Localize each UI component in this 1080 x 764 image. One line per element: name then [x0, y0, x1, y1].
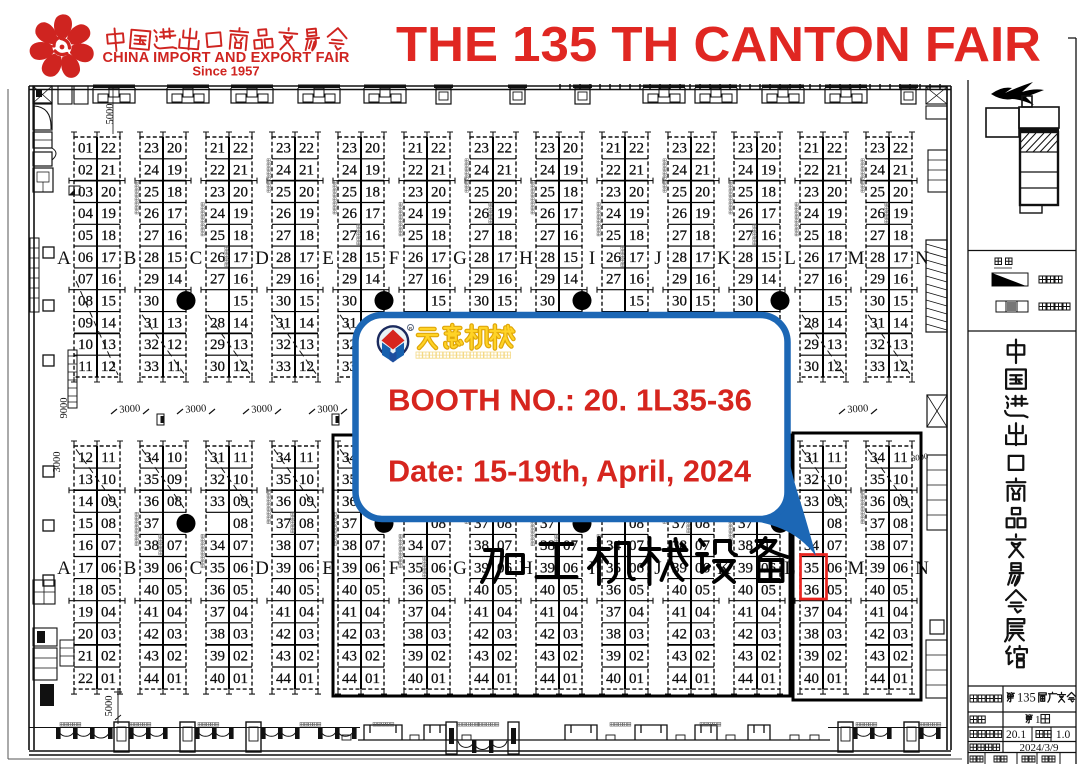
svg-text:43: 43 [276, 649, 291, 665]
svg-text:32: 32 [210, 472, 225, 488]
svg-text:39: 39 [210, 649, 225, 665]
svg-text:3000: 3000 [185, 403, 207, 415]
svg-text:17: 17 [299, 250, 315, 266]
svg-text:32: 32 [276, 337, 291, 353]
svg-text:15: 15 [695, 294, 710, 310]
svg-text:21: 21 [408, 141, 423, 157]
svg-text:27: 27 [540, 228, 556, 244]
svg-text:28: 28 [870, 250, 885, 266]
svg-text:43: 43 [342, 649, 357, 665]
svg-text:27: 27 [474, 228, 490, 244]
svg-text:18: 18 [497, 228, 512, 244]
svg-text:39: 39 [408, 649, 423, 665]
svg-text:35: 35 [408, 560, 423, 576]
svg-text:40: 40 [738, 582, 753, 598]
svg-text:G: G [453, 248, 467, 269]
svg-text:30: 30 [672, 294, 687, 310]
svg-text:38: 38 [540, 538, 555, 554]
svg-text:42: 42 [870, 627, 885, 643]
svg-text:27: 27 [804, 272, 820, 288]
svg-text:18: 18 [827, 228, 842, 244]
svg-text:L: L [784, 248, 796, 269]
svg-text:02: 02 [761, 649, 776, 665]
svg-text:G: G [453, 558, 467, 579]
svg-text:35: 35 [276, 472, 291, 488]
svg-text:01: 01 [695, 671, 710, 687]
svg-text:19: 19 [893, 206, 908, 222]
svg-text:43: 43 [738, 649, 753, 665]
svg-text:25: 25 [672, 184, 687, 200]
svg-text:05: 05 [497, 582, 512, 598]
svg-text:15: 15 [893, 294, 908, 310]
svg-text:30: 30 [342, 294, 357, 310]
svg-text:24: 24 [804, 206, 820, 222]
svg-text:21: 21 [431, 163, 446, 179]
svg-text:BOOTH NO.: 20. 1L35-36: BOOTH NO.: 20. 1L35-36 [388, 383, 752, 418]
svg-text:16: 16 [629, 272, 645, 288]
svg-text:37: 37 [210, 605, 226, 621]
svg-text:19: 19 [761, 163, 776, 179]
svg-text:38: 38 [144, 538, 159, 554]
svg-text:14: 14 [563, 272, 579, 288]
svg-text:27: 27 [738, 228, 754, 244]
svg-text:37: 37 [408, 605, 424, 621]
svg-text:A: A [57, 248, 71, 269]
svg-text:17: 17 [761, 206, 777, 222]
svg-text:44: 44 [672, 671, 688, 687]
svg-text:17: 17 [431, 250, 447, 266]
svg-text:36: 36 [276, 494, 292, 510]
svg-text:02: 02 [365, 649, 380, 665]
svg-text:40: 40 [144, 582, 159, 598]
svg-text:21: 21 [101, 163, 116, 179]
svg-text:20: 20 [893, 184, 908, 200]
svg-text:23: 23 [738, 141, 753, 157]
svg-text:12: 12 [827, 359, 842, 375]
svg-text:02: 02 [233, 649, 248, 665]
svg-text:18: 18 [761, 184, 776, 200]
svg-text:03: 03 [431, 627, 446, 643]
svg-text:19: 19 [431, 206, 446, 222]
svg-text:24: 24 [210, 206, 226, 222]
svg-text:02: 02 [827, 649, 842, 665]
svg-text:17: 17 [167, 206, 183, 222]
svg-text:24: 24 [738, 163, 754, 179]
svg-text:05: 05 [233, 582, 248, 598]
svg-text:B: B [124, 558, 137, 579]
svg-text:17: 17 [101, 250, 117, 266]
svg-text:11: 11 [167, 359, 181, 375]
svg-text:44: 44 [276, 671, 292, 687]
svg-text:09: 09 [893, 494, 908, 510]
svg-text:28: 28 [540, 250, 555, 266]
svg-text:22: 22 [606, 163, 621, 179]
svg-text:41: 41 [276, 605, 291, 621]
svg-text:29: 29 [804, 337, 819, 353]
svg-text:23: 23 [276, 141, 291, 157]
svg-text:28: 28 [342, 250, 357, 266]
svg-text:E: E [322, 248, 334, 269]
svg-text:35: 35 [210, 560, 225, 576]
svg-text:01: 01 [101, 671, 116, 687]
svg-text:16: 16 [563, 228, 579, 244]
svg-text:39: 39 [738, 560, 753, 576]
svg-text:08: 08 [167, 494, 182, 510]
svg-text:22: 22 [210, 163, 225, 179]
svg-text:26: 26 [210, 250, 226, 266]
svg-text:06: 06 [101, 560, 117, 576]
svg-text:05: 05 [78, 228, 93, 244]
svg-text:09: 09 [233, 494, 248, 510]
svg-text:03: 03 [629, 627, 644, 643]
svg-text:20: 20 [695, 184, 710, 200]
svg-text:03: 03 [497, 627, 512, 643]
svg-text:11: 11 [827, 450, 841, 466]
svg-text:28: 28 [672, 250, 687, 266]
svg-text:01: 01 [299, 671, 314, 687]
svg-text:07: 07 [893, 538, 909, 554]
svg-text:03: 03 [167, 627, 182, 643]
svg-text:20: 20 [497, 184, 512, 200]
svg-text:04: 04 [827, 605, 843, 621]
svg-text:26: 26 [540, 206, 556, 222]
svg-text:29: 29 [672, 272, 687, 288]
svg-text:01: 01 [233, 671, 248, 687]
svg-text:32: 32 [870, 337, 885, 353]
svg-text:20: 20 [167, 141, 182, 157]
svg-text:39: 39 [540, 560, 555, 576]
svg-text:12: 12 [78, 450, 93, 466]
svg-text:05: 05 [893, 582, 908, 598]
svg-text:28: 28 [144, 250, 159, 266]
svg-text:20: 20 [233, 184, 248, 200]
svg-text:30: 30 [870, 294, 885, 310]
svg-text:18: 18 [101, 228, 116, 244]
svg-text:01: 01 [827, 671, 842, 687]
svg-text:11: 11 [101, 450, 115, 466]
svg-text:37: 37 [804, 605, 820, 621]
svg-text:H: H [519, 248, 533, 269]
svg-text:38: 38 [342, 538, 357, 554]
svg-text:18: 18 [233, 228, 248, 244]
svg-text:20: 20 [629, 184, 644, 200]
svg-text:21: 21 [827, 163, 842, 179]
svg-text:15: 15 [233, 294, 248, 310]
svg-text:01: 01 [563, 671, 578, 687]
svg-text:20.1: 20.1 [1006, 729, 1026, 741]
svg-text:10: 10 [299, 472, 314, 488]
svg-text:24: 24 [606, 206, 622, 222]
svg-text:24: 24 [276, 163, 292, 179]
svg-text:17: 17 [563, 206, 579, 222]
svg-text:10: 10 [827, 472, 842, 488]
svg-text:09: 09 [827, 494, 842, 510]
svg-text:23: 23 [342, 141, 357, 157]
svg-text:07: 07 [78, 272, 94, 288]
svg-text:11: 11 [233, 450, 247, 466]
svg-text:21: 21 [233, 163, 248, 179]
svg-text:I: I [589, 248, 595, 269]
svg-text:13: 13 [101, 337, 116, 353]
svg-text:04: 04 [233, 605, 249, 621]
svg-text:36: 36 [804, 582, 820, 598]
svg-text:07: 07 [431, 538, 447, 554]
svg-text:17: 17 [629, 250, 645, 266]
svg-text:29: 29 [870, 272, 885, 288]
svg-text:06: 06 [431, 560, 447, 576]
svg-text:03: 03 [695, 627, 710, 643]
svg-text:40: 40 [342, 582, 357, 598]
svg-text:40: 40 [540, 582, 555, 598]
svg-text:36: 36 [606, 582, 622, 598]
svg-text:07: 07 [233, 538, 249, 554]
svg-text:02: 02 [299, 649, 314, 665]
svg-text:14: 14 [827, 315, 843, 331]
svg-text:10: 10 [78, 337, 93, 353]
svg-text:03: 03 [893, 627, 908, 643]
svg-text:2024/3/9: 2024/3/9 [1019, 742, 1059, 754]
svg-text:14: 14 [761, 272, 777, 288]
svg-text:21: 21 [497, 163, 512, 179]
svg-text:01: 01 [431, 671, 446, 687]
svg-text:09: 09 [101, 494, 116, 510]
svg-text:10: 10 [233, 472, 248, 488]
svg-text:19: 19 [78, 605, 93, 621]
svg-text:05: 05 [761, 582, 776, 598]
svg-text:19: 19 [299, 206, 314, 222]
svg-text:D: D [255, 248, 269, 269]
svg-text:33: 33 [144, 359, 159, 375]
svg-text:26: 26 [606, 250, 622, 266]
svg-text:16: 16 [233, 272, 249, 288]
svg-text:3000: 3000 [251, 403, 273, 415]
svg-text:27: 27 [144, 228, 160, 244]
svg-text:04: 04 [497, 605, 513, 621]
svg-text:05: 05 [167, 582, 182, 598]
svg-text:15: 15 [497, 294, 512, 310]
svg-text:20: 20 [101, 184, 116, 200]
svg-text:01: 01 [365, 671, 380, 687]
svg-text:34: 34 [606, 538, 622, 554]
svg-text:15: 15 [761, 250, 776, 266]
svg-text:02: 02 [78, 163, 93, 179]
svg-text:35: 35 [870, 472, 885, 488]
svg-text:02: 02 [167, 649, 182, 665]
svg-text:21: 21 [629, 163, 644, 179]
svg-text:30: 30 [210, 359, 225, 375]
svg-text:08: 08 [299, 516, 314, 532]
svg-text:41: 41 [672, 605, 687, 621]
svg-text:24: 24 [870, 163, 886, 179]
svg-text:40: 40 [474, 582, 489, 598]
svg-text:10: 10 [167, 450, 182, 466]
svg-text:16: 16 [78, 538, 94, 554]
svg-text:22: 22 [695, 141, 710, 157]
svg-text:20: 20 [827, 184, 842, 200]
svg-text:F: F [389, 248, 400, 269]
svg-text:06: 06 [563, 560, 579, 576]
svg-text:01: 01 [629, 671, 644, 687]
svg-text:22: 22 [101, 141, 116, 157]
svg-text:03: 03 [233, 627, 248, 643]
svg-text:01: 01 [167, 671, 182, 687]
svg-text:25: 25 [606, 228, 621, 244]
svg-text:40: 40 [408, 671, 423, 687]
svg-text:26: 26 [738, 206, 754, 222]
svg-text:21: 21 [893, 163, 908, 179]
svg-text:35: 35 [804, 560, 819, 576]
svg-text:15: 15 [299, 294, 314, 310]
svg-text:38: 38 [210, 627, 225, 643]
svg-text:25: 25 [144, 184, 159, 200]
svg-text:05: 05 [299, 582, 314, 598]
svg-text:29: 29 [540, 272, 555, 288]
svg-text:38: 38 [804, 627, 819, 643]
svg-text:40: 40 [804, 671, 819, 687]
svg-text:06: 06 [893, 560, 909, 576]
svg-text:44: 44 [738, 671, 754, 687]
svg-text:21: 21 [78, 649, 93, 665]
svg-text:20: 20 [563, 141, 578, 157]
svg-text:15: 15 [629, 294, 644, 310]
svg-text:40: 40 [276, 582, 291, 598]
svg-text:27: 27 [672, 228, 688, 244]
svg-text:08: 08 [827, 516, 842, 532]
svg-text:13: 13 [893, 337, 908, 353]
svg-text:35: 35 [144, 472, 159, 488]
svg-text:02: 02 [893, 649, 908, 665]
svg-text:19: 19 [563, 163, 578, 179]
svg-text:16: 16 [101, 272, 117, 288]
svg-text:20: 20 [761, 141, 776, 157]
svg-text:28: 28 [276, 250, 291, 266]
svg-text:12: 12 [233, 359, 248, 375]
svg-text:26: 26 [144, 206, 160, 222]
svg-text:26: 26 [408, 250, 424, 266]
svg-text:04: 04 [761, 605, 777, 621]
svg-text:13: 13 [78, 472, 93, 488]
svg-text:02: 02 [629, 649, 644, 665]
svg-text:23: 23 [606, 184, 621, 200]
svg-text:30: 30 [276, 294, 291, 310]
svg-text:01: 01 [78, 141, 93, 157]
svg-text:36: 36 [408, 582, 424, 598]
svg-text:40: 40 [870, 582, 885, 598]
svg-text:25: 25 [474, 184, 489, 200]
svg-text:07: 07 [629, 538, 645, 554]
svg-text:21: 21 [695, 163, 710, 179]
svg-text:17: 17 [497, 250, 513, 266]
svg-text:41: 41 [144, 605, 159, 621]
svg-text:03: 03 [299, 627, 314, 643]
svg-text:33: 33 [870, 359, 885, 375]
svg-text:37: 37 [870, 516, 886, 532]
svg-text:16: 16 [827, 272, 843, 288]
svg-text:29: 29 [276, 272, 291, 288]
svg-text:24: 24 [540, 163, 556, 179]
svg-text:22: 22 [408, 163, 423, 179]
svg-text:Since 1957: Since 1957 [192, 64, 259, 79]
svg-text:1.0: 1.0 [1056, 729, 1071, 741]
svg-text:15: 15 [101, 294, 116, 310]
svg-text:43: 43 [672, 649, 687, 665]
svg-text:29: 29 [210, 337, 225, 353]
svg-text:38: 38 [276, 538, 291, 554]
svg-text:F: F [389, 558, 400, 579]
svg-text:01: 01 [761, 671, 776, 687]
svg-text:04: 04 [101, 605, 117, 621]
svg-text:25: 25 [276, 184, 291, 200]
svg-text:05: 05 [827, 582, 842, 598]
svg-text:19: 19 [233, 206, 248, 222]
svg-text:39: 39 [144, 560, 159, 576]
svg-text:19: 19 [629, 206, 644, 222]
svg-text:41: 41 [738, 605, 753, 621]
svg-text:11: 11 [299, 450, 313, 466]
svg-text:18: 18 [893, 228, 908, 244]
svg-text:08: 08 [233, 516, 248, 532]
svg-text:39: 39 [870, 560, 885, 576]
svg-text:22: 22 [827, 141, 842, 157]
svg-text:Date: 15-19th, April, 2024: Date: 15-19th, April, 2024 [388, 454, 752, 489]
svg-text:03: 03 [365, 627, 380, 643]
svg-text:34: 34 [210, 538, 226, 554]
svg-text:B: B [124, 248, 137, 269]
svg-text:30: 30 [144, 294, 159, 310]
svg-text:9000: 9000 [59, 398, 70, 419]
svg-text:06: 06 [365, 560, 381, 576]
svg-text:18: 18 [299, 228, 314, 244]
svg-text:31: 31 [210, 450, 225, 466]
svg-text:33: 33 [276, 359, 291, 375]
svg-text:14: 14 [167, 272, 183, 288]
svg-text:36: 36 [870, 494, 886, 510]
svg-text:34: 34 [408, 538, 424, 554]
svg-text:06: 06 [78, 250, 94, 266]
svg-text:32: 32 [804, 472, 819, 488]
svg-text:09: 09 [167, 472, 182, 488]
svg-text:05: 05 [101, 582, 116, 598]
svg-text:3000: 3000 [847, 403, 869, 415]
svg-text:19: 19 [695, 206, 710, 222]
svg-text:25: 25 [540, 184, 555, 200]
svg-text:06: 06 [827, 560, 843, 576]
svg-text:14: 14 [299, 315, 315, 331]
svg-text:09: 09 [78, 315, 93, 331]
svg-text:22: 22 [78, 671, 93, 687]
svg-text:25: 25 [738, 184, 753, 200]
svg-text:42: 42 [540, 627, 555, 643]
svg-text:02: 02 [563, 649, 578, 665]
svg-text:07: 07 [101, 538, 117, 554]
svg-text:20: 20 [299, 184, 314, 200]
svg-text:02: 02 [695, 649, 710, 665]
svg-text:41: 41 [870, 605, 885, 621]
svg-text:29: 29 [474, 272, 489, 288]
svg-text:37: 37 [144, 516, 160, 532]
svg-text:15: 15 [431, 294, 446, 310]
svg-text:28: 28 [738, 250, 753, 266]
svg-text:41: 41 [474, 605, 489, 621]
svg-text:26: 26 [804, 250, 820, 266]
svg-text:37: 37 [606, 605, 622, 621]
svg-text:25: 25 [408, 228, 423, 244]
svg-text:26: 26 [870, 206, 886, 222]
svg-text:21: 21 [210, 141, 225, 157]
svg-text:42: 42 [474, 627, 489, 643]
svg-text:04: 04 [563, 605, 579, 621]
svg-text:30: 30 [474, 294, 489, 310]
